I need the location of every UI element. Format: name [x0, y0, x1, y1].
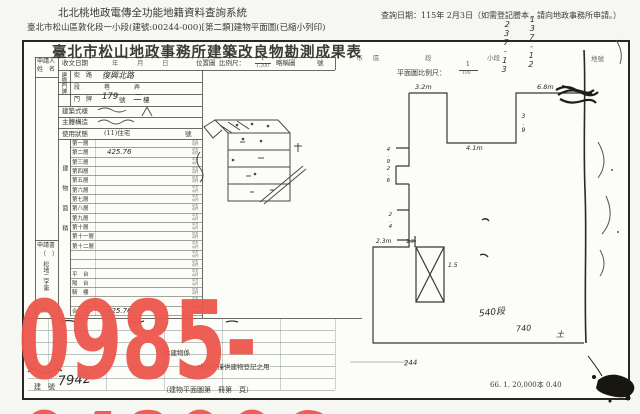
dim-step: 2.3m [376, 239, 391, 246]
area-unit: 平方公尺 [192, 242, 201, 249]
area-unit: 平方公尺 [192, 186, 201, 193]
phone-number-watermark: 0985-048006 [18, 286, 453, 414]
floor-label: 第十一層 [70, 232, 97, 240]
floor-row: 第十層平方公尺 [70, 223, 202, 232]
area-unit: 平方公尺 [192, 214, 201, 221]
structure-label: 主體構造 [62, 119, 88, 126]
scanned-survey-document: 北北桃地政電傳全功能地籍資料查詢系統 查詢日期：115年 2月3日（如需登記謄本… [0, 0, 640, 414]
handwritten-note-3: 土 [556, 330, 564, 339]
street-label: 街 路 [74, 73, 92, 80]
dim-top-right: 6.8m [537, 84, 554, 91]
floor-label: 第七層 [70, 195, 97, 203]
floor-row: 平方公尺 [70, 251, 202, 260]
floor-row: 第九層平方公尺 [70, 214, 202, 223]
application-paren: （ ） [40, 252, 58, 259]
floor-row: 第六層平方公尺 [70, 186, 202, 195]
dim-top-left: 3.2m [415, 84, 432, 91]
handwritten-lot-number-2: 137-12 [526, 15, 537, 71]
floor-row: 第七層平方公尺 [70, 195, 202, 204]
dim-notch-side: 3.9 [519, 113, 526, 134]
dim-left-b: 2.6 [385, 166, 391, 184]
usage-label: 使用狀態 [62, 131, 88, 138]
field-lot-label: 地號 [591, 56, 604, 63]
floor-row: 第十二層平方公尺 [70, 241, 202, 250]
door-label: 門 牌 [74, 97, 92, 104]
applicant-label-2: 姓 名 [37, 67, 55, 74]
area-unit: 平方公尺 [192, 168, 201, 175]
floor-area-value: 425.76 [97, 148, 192, 156]
area-unit: 平方公尺 [192, 223, 201, 230]
area-unit: 平方公尺 [192, 233, 201, 240]
print-code: 66. 1. 20,000本 0.40 [490, 381, 562, 389]
dim-stair-top: 1.3 [406, 240, 414, 246]
field-subsection: 小段 [487, 55, 500, 62]
area-unit: 平方公尺 [192, 177, 201, 184]
floor-label: 第十二層 [70, 242, 97, 250]
field-section: 段 [425, 55, 432, 62]
floor-label: 第四層 [70, 167, 97, 175]
floor-row: 第八層平方公尺 [70, 204, 202, 213]
floor-row: 第五層平方公尺 [70, 176, 202, 185]
floor-row: 第二層425.76平方公尺 [70, 148, 202, 157]
area-unit: 平方公尺 [192, 195, 201, 202]
area-unit: 平方公尺 [192, 205, 201, 212]
floor-label: 第一層 [70, 139, 97, 147]
floor-label: 第十層 [70, 223, 97, 231]
floor-row: 第一層平方公尺 [70, 139, 202, 148]
system-title: 北北桃地政電傳全功能地籍資料查詢系統 [58, 7, 247, 19]
street-value: 復興北路 [102, 71, 134, 80]
floor-label: 第六層 [70, 186, 97, 194]
floor-label: 第二層 [70, 148, 97, 156]
usage-value: (11)住宅 [104, 130, 130, 137]
doc-description: 臺北市松山區敦化段一小段(建號:00244-000)[第二類]建物平面圖(已縮小… [27, 24, 325, 34]
floor-row: 平 台平方公尺 [70, 269, 202, 278]
lane-label: 段 巷 弄 [74, 85, 149, 92]
door-number: 179 [102, 93, 118, 103]
handwritten-note-2: 740 [516, 323, 532, 333]
floor-row: 第十一層平方公尺 [70, 232, 202, 241]
area-unit: 平方公尺 [192, 251, 201, 258]
plan-scale-den: 100 [462, 71, 471, 76]
dim-left-c: 2.4 [387, 212, 393, 230]
floor-label: 平 台 [70, 270, 97, 278]
plan-scale-label: 平面圖比例尺： [397, 69, 446, 77]
dim-stair-side: 1.5 [448, 263, 458, 270]
floor-label: 第八層 [70, 204, 97, 212]
floor-row: 平方公尺 [70, 260, 202, 269]
floor-row: 第三層平方公尺 [70, 158, 202, 167]
floor-row: 第四層平方公尺 [70, 167, 202, 176]
area-unit: 平方公尺 [192, 149, 201, 156]
plan-scale-num: 1 [466, 62, 470, 69]
usage-no: 號 [185, 131, 192, 138]
area-unit: 平方公尺 [192, 140, 201, 147]
application-doc-label: 申請書 [37, 243, 55, 250]
address-group-label: 建物門牌 [60, 72, 66, 105]
dim-notch-bottom: 4.1m [466, 145, 483, 152]
door-number-unit: 號 [119, 97, 126, 104]
floor-label: 第五層 [70, 176, 97, 184]
form-title: 臺北市松山地政事務所建築改良物勘測成果表 [52, 45, 362, 62]
style-label: 建築式樣 [62, 108, 88, 115]
floor-label: 第三層 [70, 158, 97, 166]
dim-left-a: 4.9 [385, 147, 391, 165]
location-scale-den: 1,200 [256, 64, 269, 69]
area-group-label: 建物面積 [60, 165, 67, 285]
door-floor-unit: 樓 [143, 97, 150, 104]
area-unit: 平方公尺 [192, 261, 201, 268]
area-unit: 平方公尺 [192, 270, 201, 277]
floor-label: 第九層 [70, 214, 97, 222]
door-floor: 二 [133, 94, 142, 104]
field-district: 區 [373, 55, 380, 62]
area-unit: 平方公尺 [192, 158, 201, 165]
query-date: 查詢日期：115年 2月3日（如需登記謄本，請向地政事務所申請。） [381, 11, 621, 20]
